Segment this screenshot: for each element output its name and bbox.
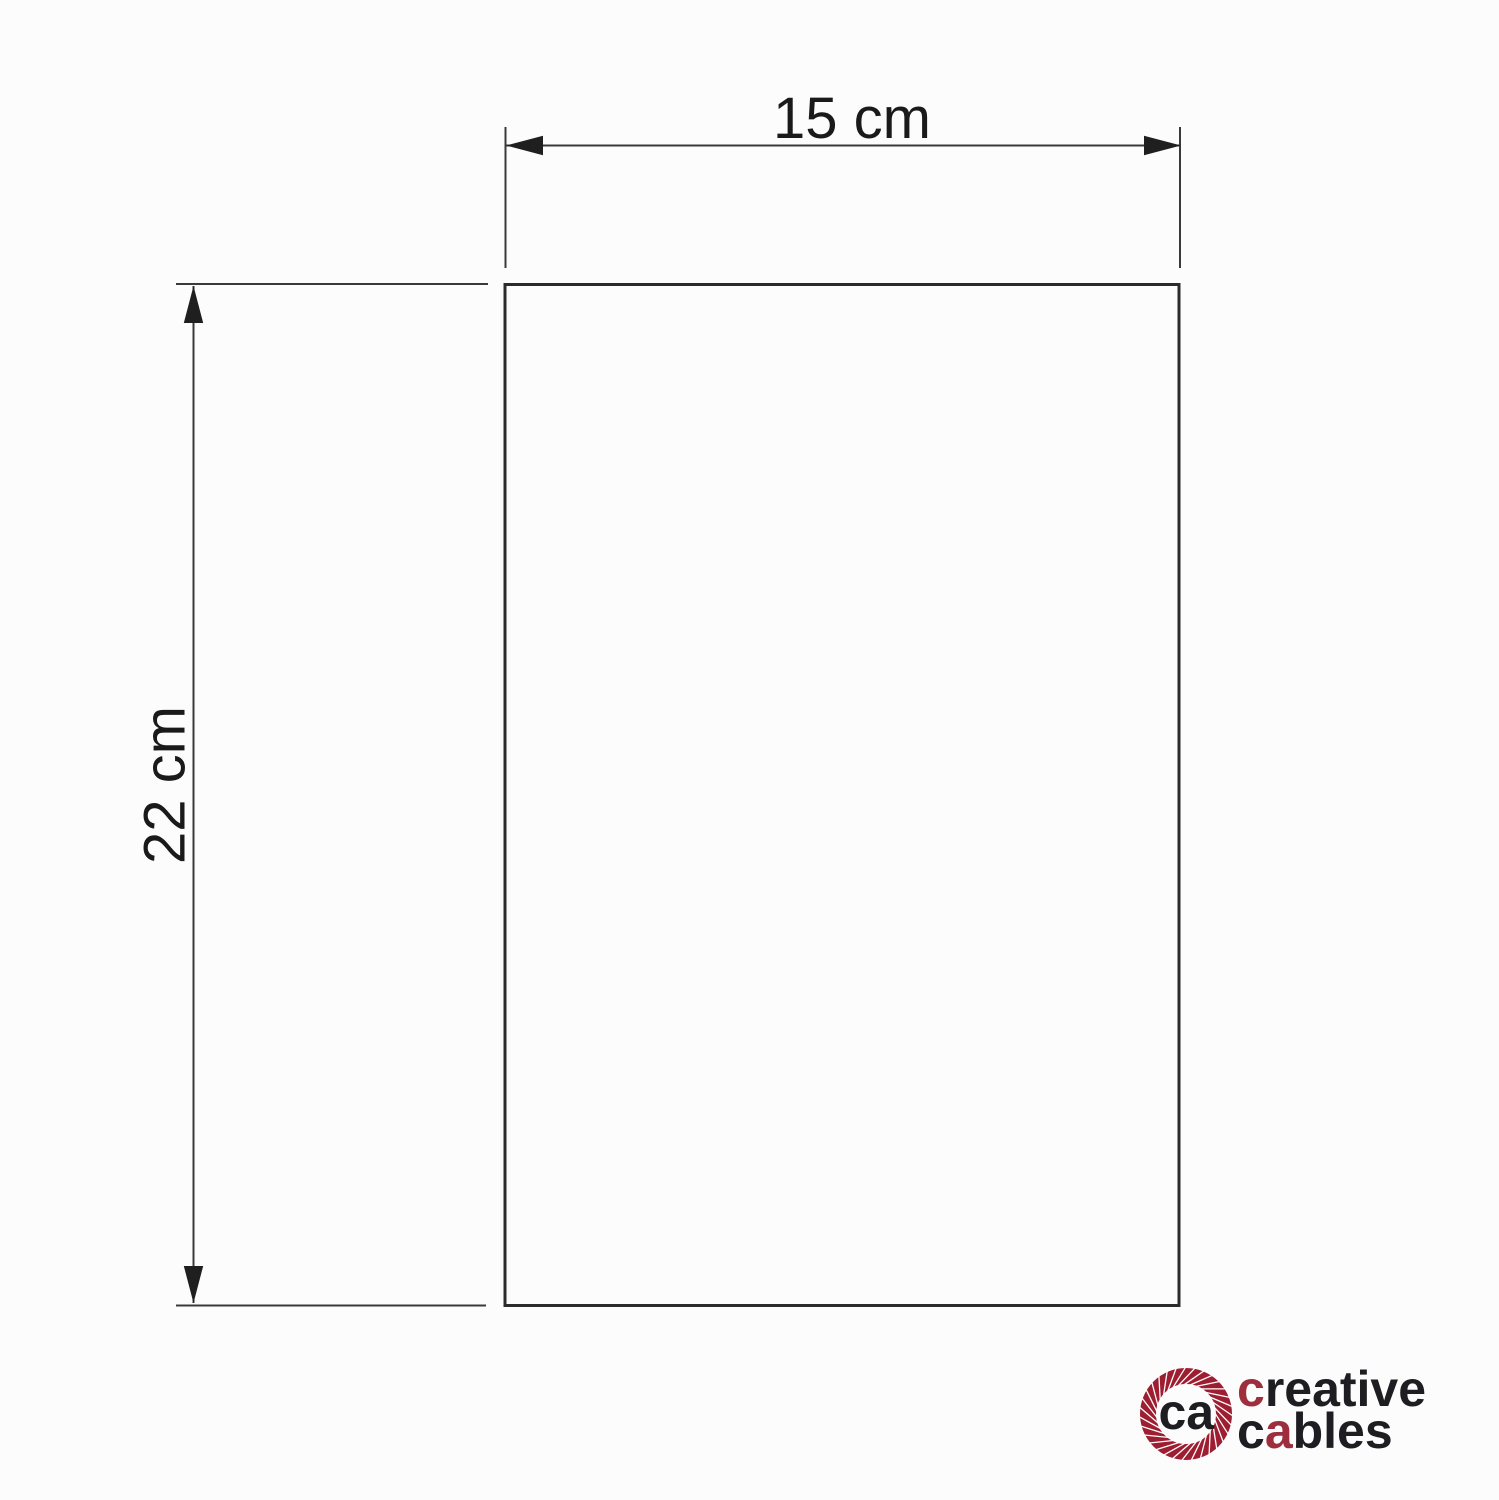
svg-text:ca: ca xyxy=(1159,1384,1216,1440)
svg-text:15 cm: 15 cm xyxy=(773,86,931,151)
svg-text:22 cm: 22 cm xyxy=(133,706,198,864)
svg-text:cables: cables xyxy=(1237,1403,1393,1459)
